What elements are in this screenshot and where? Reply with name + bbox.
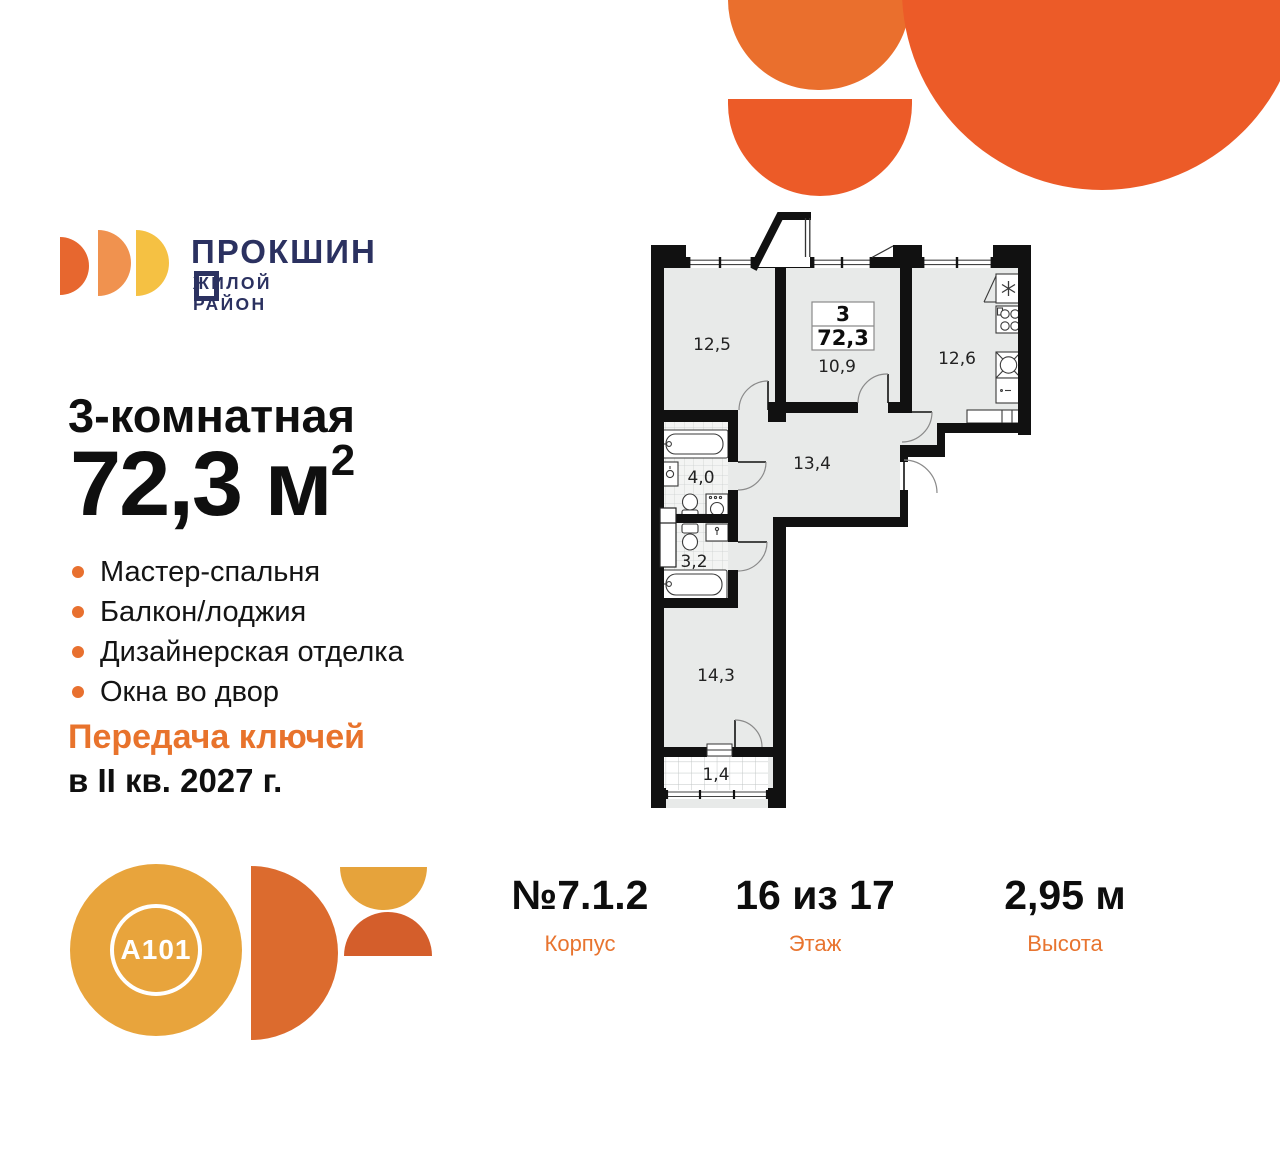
- flyer-page: { "brand": { "wordmark": "ПРОКШИН", "wor…: [0, 0, 1280, 1160]
- info-height: 2,95 м Высота: [1004, 872, 1126, 957]
- a101-half-disc-icon: [251, 866, 338, 1040]
- bullet-icon: [72, 606, 84, 618]
- handover-title: Передача ключей: [68, 718, 365, 757]
- area-value: 72,3: [70, 433, 241, 535]
- window-icon: [688, 257, 753, 268]
- feature-item: Окна во двор: [72, 672, 404, 712]
- plan-total-area: 72,3: [817, 326, 869, 350]
- feature-label: Дизайнерская отделка: [100, 636, 404, 669]
- windows: [688, 257, 993, 268]
- washbasin-icon: [662, 462, 678, 486]
- feature-item: Дизайнерская отделка: [72, 632, 404, 672]
- area-exponent: 2: [331, 436, 355, 485]
- plan-summary-box: 3 72,3: [812, 302, 874, 350]
- height-label: Высота: [1004, 931, 1126, 957]
- bay-window: [753, 216, 811, 269]
- a101-bowtie-top-icon: [340, 867, 427, 910]
- floor-plan: 3 72,3 12,5 10,9 12,6 13,4 4,0 3,2 14,3 …: [640, 200, 1040, 820]
- closet-icon: [967, 410, 1021, 423]
- room-label-living: 12,5: [693, 335, 731, 355]
- room-label-wc: 3,2: [680, 552, 707, 572]
- room-label-bathroom: 4,0: [687, 468, 714, 488]
- stove-icon: [996, 306, 1021, 333]
- room-label-kitchen: 12,6: [938, 349, 976, 369]
- logo-petal-2-icon: [98, 230, 131, 296]
- feature-item: Мастер-спальня: [72, 552, 404, 592]
- brand-subtitle: ЖИЛОЙ РАЙОН: [193, 273, 272, 315]
- floor-label: Этаж: [735, 931, 895, 957]
- balcony-glazing: [666, 790, 768, 799]
- building-number: №7.1.2: [512, 872, 649, 919]
- building-label: Корпус: [512, 931, 649, 957]
- room-label-bedroom: 10,9: [818, 357, 856, 377]
- balcony-door-sill: [707, 744, 732, 756]
- toilet-icon: [682, 524, 698, 550]
- room-label-hallway: 13,4: [793, 454, 831, 474]
- area-unit: м: [265, 433, 331, 535]
- handover-term: в II кв. 2027 г.: [68, 762, 282, 800]
- kitchen-cabinet-icon: [996, 378, 1021, 403]
- feature-list: Мастер-спальня Балкон/лоджия Дизайнерска…: [72, 552, 404, 712]
- feature-item: Балкон/лоджия: [72, 592, 404, 632]
- feature-label: Мастер-спальня: [100, 556, 320, 589]
- bathtub-icon: [661, 570, 727, 599]
- a101-text: A101: [121, 934, 192, 966]
- listing-area: 72,3 м2: [70, 432, 355, 537]
- plan-rooms-count: 3: [836, 302, 850, 326]
- bullet-icon: [72, 686, 84, 698]
- window-icon: [812, 257, 872, 268]
- decor-semicircle-top: [728, 0, 910, 90]
- window-icon: [922, 257, 993, 268]
- decor-semicircle-middle: [728, 99, 912, 196]
- room-label-master: 14,3: [697, 666, 735, 686]
- bathtub-icon: [661, 430, 728, 458]
- kitchen-sink-icon: [996, 352, 1021, 378]
- feature-label: Окна во двор: [100, 676, 279, 709]
- info-floor: 16 из 17 Этаж: [735, 872, 895, 957]
- logo-petal-3-icon: [136, 230, 169, 296]
- a101-ring: A101: [110, 904, 202, 996]
- a101-bowtie-bottom-icon: [344, 912, 432, 956]
- bullet-icon: [72, 566, 84, 578]
- floor-number: 16 из 17: [735, 872, 895, 919]
- logo-petal-1-icon: [60, 237, 89, 295]
- shaft: [660, 508, 676, 567]
- decor-circle-large: [902, 0, 1280, 190]
- ceiling-height: 2,95 м: [1004, 872, 1126, 919]
- small-sink-icon: [706, 524, 728, 541]
- feature-label: Балкон/лоджия: [100, 596, 306, 629]
- brand-wordmark-text: ПРОКШИН: [191, 233, 377, 270]
- bullet-icon: [72, 646, 84, 658]
- room-label-balcony: 1,4: [702, 765, 729, 785]
- info-building: №7.1.2 Корпус: [512, 872, 649, 957]
